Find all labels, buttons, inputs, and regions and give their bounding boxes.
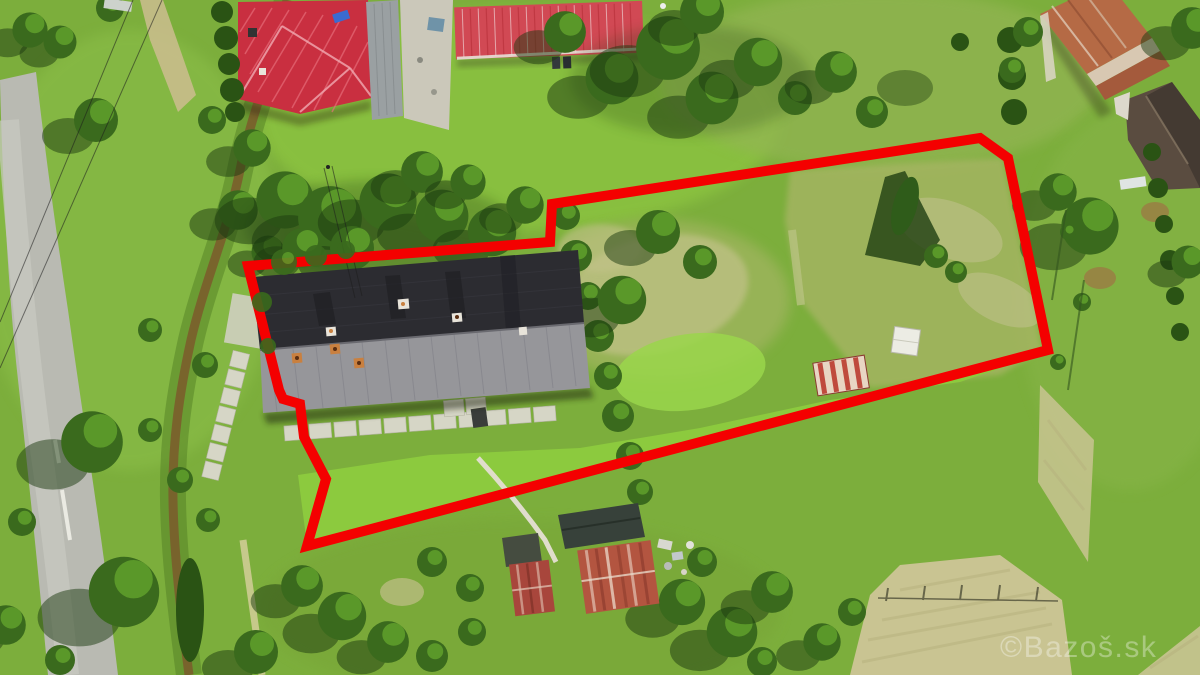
small-rusty-shed: [509, 560, 555, 616]
big-rusty-shed: [577, 540, 659, 614]
aerial-photo-canvas: ©Bazoš.sk: [0, 0, 1200, 675]
roof-window: [248, 28, 257, 37]
concrete-yard: [400, 0, 453, 130]
dark-object: [471, 407, 488, 428]
aerial-photo: ©Bazoš.sk: [0, 0, 1200, 675]
main-house: [252, 250, 594, 424]
grey-annex: [366, 0, 403, 120]
chimney: [259, 68, 266, 75]
red-hip-roof-house: [238, 0, 371, 126]
watermark: ©Bazoš.sk: [1000, 631, 1157, 664]
white-shed: [891, 326, 920, 355]
